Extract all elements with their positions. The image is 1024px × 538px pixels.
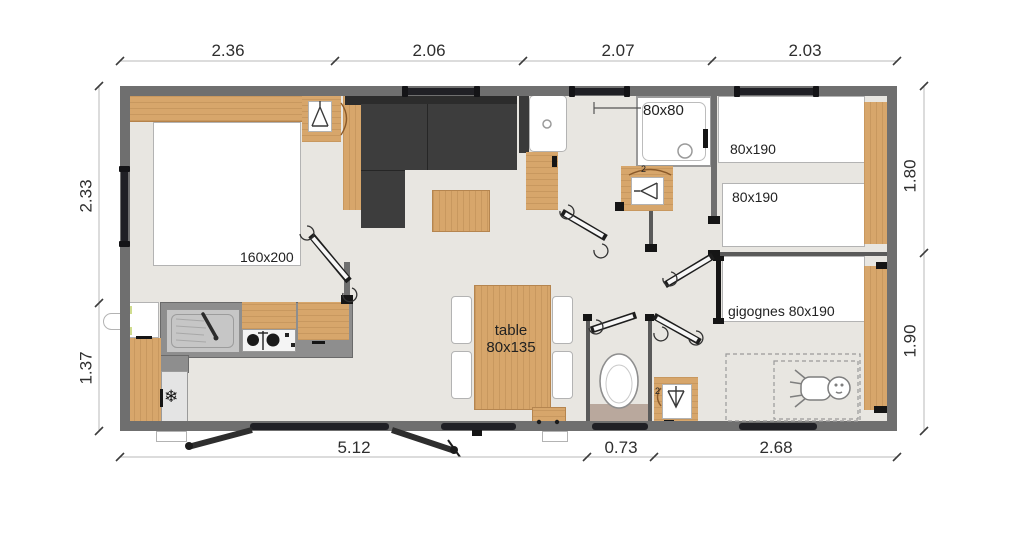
wc-hinge-right: [645, 314, 654, 321]
window-cap: [734, 86, 740, 97]
window-cap: [119, 241, 130, 247]
dim-bottom-3: 2.68: [759, 439, 792, 456]
wc-mat: [589, 404, 651, 421]
window-cap: [624, 86, 630, 97]
label-master-bed: 160x200: [240, 250, 294, 265]
column-handle: [136, 336, 152, 339]
coffee-table: [432, 190, 490, 232]
chair: [451, 296, 472, 344]
master-wardrobe-door: [308, 101, 332, 132]
sofa-seam: [427, 104, 428, 170]
window-handle: [472, 430, 482, 436]
kitchen-column: [128, 338, 161, 426]
dim-top-1: 2.36: [211, 42, 244, 59]
stove: [242, 329, 296, 352]
stub-cap: [645, 244, 657, 252]
label-table-line1: table: [495, 323, 528, 340]
chair: [552, 296, 573, 344]
master-bed: [153, 122, 301, 266]
label-kids-bed-1: 80x190: [730, 142, 776, 157]
counter-handle: [312, 341, 325, 344]
window-wc: [592, 423, 648, 430]
kids-wardrobe-top: [864, 102, 888, 244]
dim-left-2: 1.37: [78, 351, 95, 384]
fridge-handle: [160, 389, 163, 407]
dim-bottom-1: 5.12: [337, 439, 370, 456]
label-kids-bed-2: 80x190: [732, 190, 778, 205]
window-master-left: [121, 168, 128, 243]
label-shower: 80x80: [643, 103, 684, 120]
trundle-pull-bar: [716, 259, 721, 320]
label-table-line2: 80x135: [486, 340, 535, 357]
kids-wardrobe-bottom: [864, 266, 888, 410]
wall-kids-divider: [711, 252, 887, 256]
window-bathroom: [571, 88, 628, 95]
sofa-seam-2: [361, 170, 405, 171]
dim-top-3: 2.07: [601, 42, 634, 59]
sofa-chaise: [361, 104, 405, 228]
window-kids-bottom: [739, 423, 817, 430]
cabinet-above-stove: [242, 302, 296, 329]
master-headboard: [130, 96, 303, 122]
wc-hinge-left: [583, 314, 592, 321]
dim-top-4: 2.03: [788, 42, 821, 59]
window-living: [404, 88, 478, 95]
window-cap: [813, 86, 819, 97]
wall-cap: [708, 216, 720, 224]
basin-cabinet-handle: [552, 156, 557, 167]
partition-wood-strip: [343, 96, 361, 210]
window-dining: [441, 423, 516, 430]
wardrobe-cap-2: [874, 406, 888, 413]
trundle-cap-bottom: [713, 318, 724, 324]
window-cap: [402, 86, 408, 97]
wall-bathroom-bedroom: [711, 96, 717, 224]
chair: [451, 351, 472, 399]
dim-right-1: 1.80: [902, 159, 919, 192]
window-cap: [569, 86, 575, 97]
window-kids-top: [736, 88, 817, 95]
sliding-bay-door: [250, 423, 389, 430]
entry-door-left: [185, 430, 252, 450]
entry-door-right: [392, 430, 460, 457]
window-cap: [119, 166, 130, 172]
wall-left: [120, 86, 130, 431]
snowflake-icon: ❄: [164, 387, 186, 407]
chair: [552, 351, 573, 399]
dim-left-1: 2.33: [78, 179, 95, 212]
kitchen-appliance: [128, 302, 159, 338]
master-door-hinge: [341, 295, 353, 304]
wc-wall-right: [648, 314, 652, 421]
dim-right-2: 1.90: [902, 324, 919, 357]
kitchen-sink-basin: [171, 314, 234, 348]
hall-wardrobe-door: [631, 177, 664, 205]
dim-top-2: 2.06: [412, 42, 445, 59]
label-wardrobe-count-2: 2: [655, 387, 660, 397]
wc-wardrobe-door: [662, 384, 692, 419]
bathroom-tall-cabinet: [519, 96, 529, 153]
divider-hinge: [708, 250, 720, 258]
window-cap: [474, 86, 480, 97]
label-trundle-beds: gigognes 80x190: [728, 304, 835, 319]
entry-step: [542, 431, 568, 442]
dim-bottom-2: 0.73: [604, 439, 637, 456]
entry-step: [156, 431, 187, 442]
wc-wall-left: [586, 314, 590, 421]
shower-door-handle: [703, 129, 708, 148]
floor-plan: ❄: [0, 0, 1024, 538]
label-wardrobe-count: 2: [641, 165, 646, 175]
wall-right: [887, 86, 897, 431]
kitchen-cabinet-right: [298, 302, 349, 340]
hall-wardrobe-hinge: [615, 202, 624, 211]
bathroom-basin: [529, 95, 567, 152]
